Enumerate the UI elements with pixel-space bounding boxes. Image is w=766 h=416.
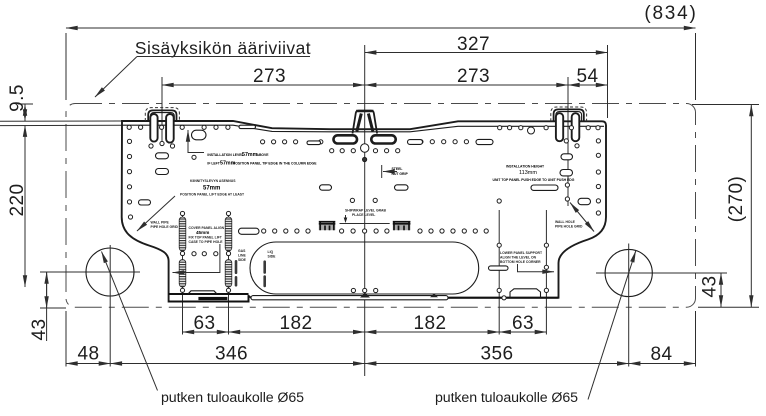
svg-text:NUT GRIP: NUT GRIP (392, 172, 409, 176)
svg-text:182: 182 (280, 313, 313, 334)
svg-text:57mm: 57mm (203, 186, 220, 192)
svg-text:63: 63 (512, 313, 534, 334)
svg-text:putken tuloaukolle Ø65: putken tuloaukolle Ø65 (435, 390, 578, 406)
svg-text:STEEL: STEEL (392, 167, 403, 171)
svg-text:SIDE: SIDE (238, 258, 247, 262)
svg-text:LINE: LINE (238, 254, 246, 258)
svg-text:57mm: 57mm (242, 152, 258, 158)
svg-text:(834): (834) (644, 3, 697, 24)
svg-text:KIINNITYSLEVYN ASENNUS: KIINNITYSLEVYN ASENNUS (190, 179, 236, 183)
svg-text:ALIGN THE LEVEL ON: ALIGN THE LEVEL ON (500, 256, 537, 260)
svg-text:356: 356 (481, 344, 514, 365)
svg-text:UNIT TOP PANEL PUSH EDGE TO UN: UNIT TOP PANEL PUSH EDGE TO UNIT PUSH ED… (493, 178, 575, 182)
svg-text:43: 43 (700, 276, 721, 298)
svg-text:GAS: GAS (238, 249, 246, 253)
svg-text:CASE TO PIPE HOLE: CASE TO PIPE HOLE (189, 240, 224, 244)
svg-text:ABOVE: ABOVE (257, 153, 270, 157)
svg-text:Sisäyksikön ääriviivat: Sisäyksikön ääriviivat (135, 38, 311, 58)
svg-text:327: 327 (457, 34, 490, 55)
svg-text:PIPE HOLE GRID: PIPE HOLE GRID (555, 225, 583, 229)
svg-text:WALL HOLE: WALL HOLE (555, 220, 576, 224)
svg-text:BOTTOM HOLE CORNER: BOTTOM HOLE CORNER (500, 260, 541, 264)
svg-text:(270): (270) (726, 176, 747, 222)
svg-text:putken tuloaukolle Ø65: putken tuloaukolle Ø65 (161, 390, 304, 406)
svg-text:SIDE: SIDE (268, 255, 277, 259)
svg-text:182: 182 (414, 313, 447, 334)
svg-text:9.5: 9.5 (7, 84, 28, 112)
svg-text:273: 273 (457, 66, 490, 87)
svg-text:43: 43 (29, 319, 50, 341)
svg-text:220: 220 (7, 184, 28, 217)
svg-text:273: 273 (253, 66, 286, 87)
svg-text:POSITION PANEL TIP EDGE IN THE: POSITION PANEL TIP EDGE IN THE COLUMN ED… (233, 162, 317, 166)
svg-text:346: 346 (215, 344, 248, 365)
svg-text:PLACE LEVEL: PLACE LEVEL (352, 213, 375, 217)
svg-text:48: 48 (78, 344, 100, 365)
svg-text:POSITION PANEL LIFT EDGE AT LE: POSITION PANEL LIFT EDGE AT LEAST (180, 193, 245, 197)
svg-text:113mm: 113mm (519, 170, 537, 176)
svg-text:IF LEFT: IF LEFT (207, 162, 220, 166)
svg-text:LIQ: LIQ (268, 250, 274, 254)
svg-text:INSTALLATION HEIGHT: INSTALLATION HEIGHT (506, 165, 545, 169)
svg-text:84: 84 (651, 344, 673, 365)
svg-text:63: 63 (194, 313, 216, 334)
svg-text:INSTALLATION LEVEL: INSTALLATION LEVEL (207, 153, 243, 157)
svg-text:54: 54 (577, 66, 599, 87)
svg-text:PIPE HOLE GRID: PIPE HOLE GRID (151, 225, 179, 229)
svg-text:SHIPWRAP LEVEL GRAB: SHIPWRAP LEVEL GRAB (345, 209, 386, 213)
svg-text:LOWER PANEL SUPPORT: LOWER PANEL SUPPORT (500, 251, 543, 255)
svg-text:45mm: 45mm (196, 230, 209, 235)
